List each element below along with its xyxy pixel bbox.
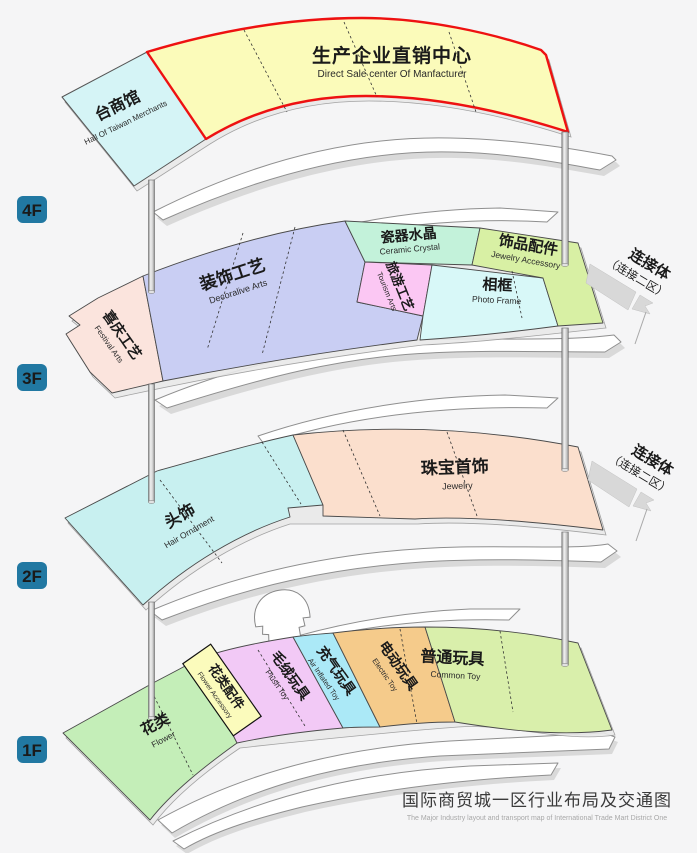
- pillar-cap: [148, 501, 154, 504]
- label-ceramic-crystal: 瓷器水晶 Ceramic Crystal: [378, 224, 441, 256]
- pillar-cap: [562, 264, 569, 267]
- jewelry-en: Jewelry: [442, 480, 473, 491]
- floor-layout-diagram: 台商馆 Hall Of Taiwan Merchants 生产企业直销中心 Di…: [0, 0, 697, 853]
- jewelry-zh: 珠宝首饰: [420, 456, 489, 478]
- connector-line: [636, 509, 647, 541]
- connector-line: [635, 312, 646, 344]
- title-en: The Major Industry layout and transport …: [407, 815, 667, 822]
- connector-ribbon-break: [633, 492, 654, 511]
- pillar-cap: [562, 469, 569, 472]
- section-jewelry: [293, 429, 603, 530]
- photoframe-zh: 相框: [482, 275, 513, 295]
- direct-sale-zh: 生产企业直销中心: [312, 44, 472, 67]
- connector-ribbon-break: [632, 295, 653, 314]
- pillar-left-2f1f: [149, 602, 155, 718]
- pillar-left-4f3f: [149, 180, 155, 292]
- floor-2f: 头饰 Hair Ornament 珠宝首饰 Jewelry: [65, 429, 606, 610]
- pillar-right-4f3f: [562, 132, 569, 265]
- pillar-right-2f1f: [562, 532, 569, 665]
- title-zh: 国际商贸城一区行业布局及交通图: [402, 791, 672, 810]
- badge-label: 1F: [22, 741, 42, 760]
- floor-3f: 喜庆工艺 Festival Arts 装饰工艺 Decoralive Arts …: [66, 221, 606, 398]
- pillar-cap: [562, 664, 569, 667]
- pillar-left-3f2f: [149, 384, 155, 502]
- badge-2f: 2F: [17, 562, 47, 589]
- pillar-cap: [148, 291, 154, 294]
- direct-sale-en: Direct Sale center Of Manfacturer: [318, 69, 468, 80]
- diagram-canvas: 台商馆 Hall Of Taiwan Merchants 生产企业直销中心 Di…: [0, 0, 697, 853]
- badge-label: 4F: [22, 201, 42, 220]
- map-title: 国际商贸城一区行业布局及交通图 The Major Industry layou…: [402, 791, 672, 822]
- badge-3f: 3F: [17, 364, 47, 391]
- badge-label: 3F: [22, 369, 42, 388]
- badge-1f: 1F: [17, 736, 47, 763]
- pillar-cap: [148, 717, 154, 720]
- badge-4f: 4F: [17, 196, 47, 223]
- label-direct-sale: 生产企业直销中心 Direct Sale center Of Manfactur…: [312, 44, 472, 80]
- floor-badges: 4F 3F 2F 1F: [17, 196, 47, 763]
- band-main: [153, 138, 616, 220]
- badge-label: 2F: [22, 567, 42, 586]
- pillar-right-3f2f: [562, 328, 569, 470]
